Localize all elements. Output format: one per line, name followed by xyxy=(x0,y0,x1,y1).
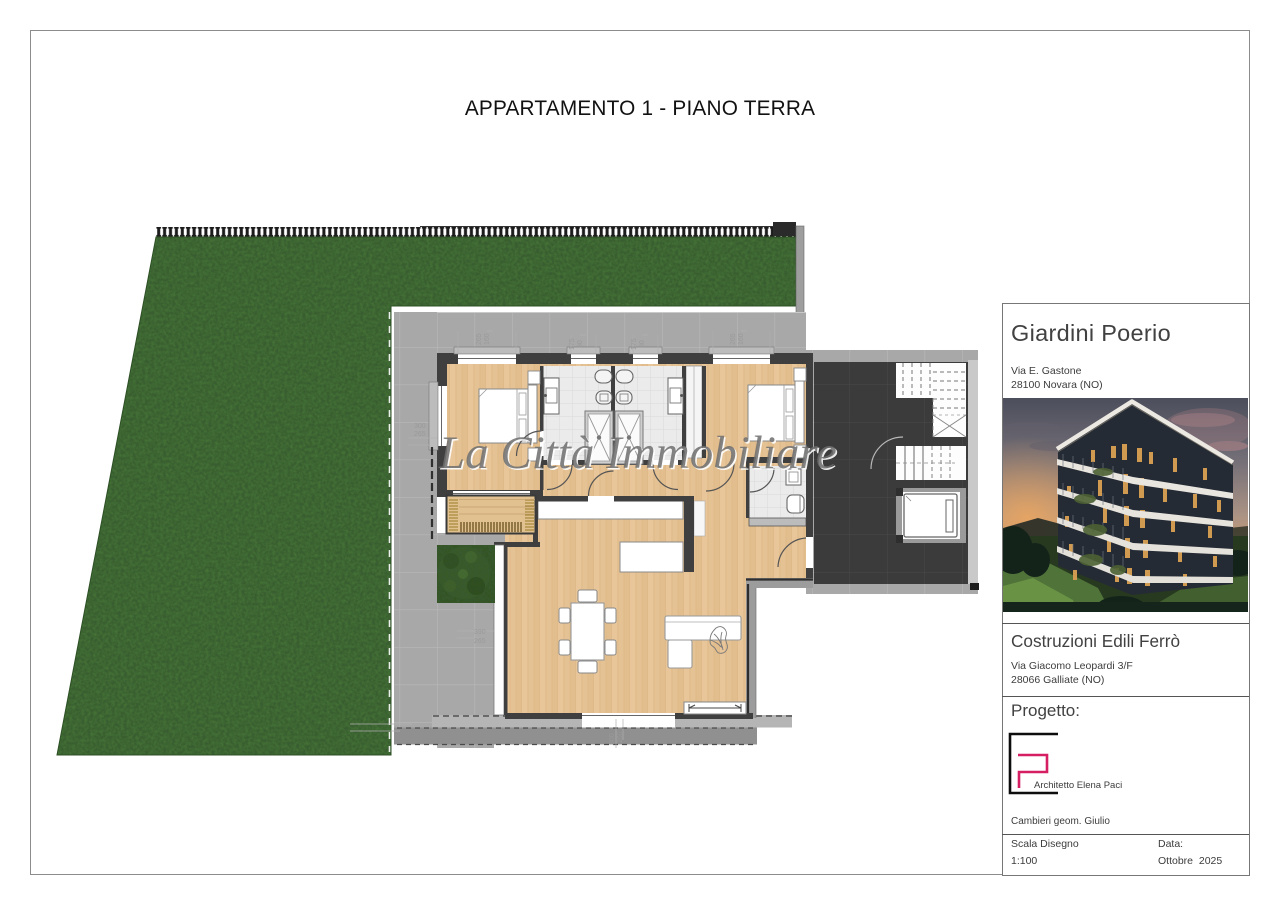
svg-text:300: 300 xyxy=(414,423,426,430)
svg-text:260: 260 xyxy=(617,731,624,743)
svg-text:175: 175 xyxy=(631,338,638,350)
svg-text:160: 160 xyxy=(484,333,491,345)
svg-text:390: 390 xyxy=(474,629,486,636)
svg-text:La Città Immobiliare: La Città Immobiliare xyxy=(438,427,837,479)
svg-text:265: 265 xyxy=(476,333,483,345)
svg-text:265: 265 xyxy=(414,431,426,438)
svg-text:265: 265 xyxy=(730,333,737,345)
svg-text:265: 265 xyxy=(474,638,486,645)
svg-text:90: 90 xyxy=(639,340,646,348)
svg-text:300: 300 xyxy=(609,733,616,745)
svg-text:90: 90 xyxy=(577,340,584,348)
svg-text:160: 160 xyxy=(738,333,745,345)
svg-text:175: 175 xyxy=(569,338,576,350)
